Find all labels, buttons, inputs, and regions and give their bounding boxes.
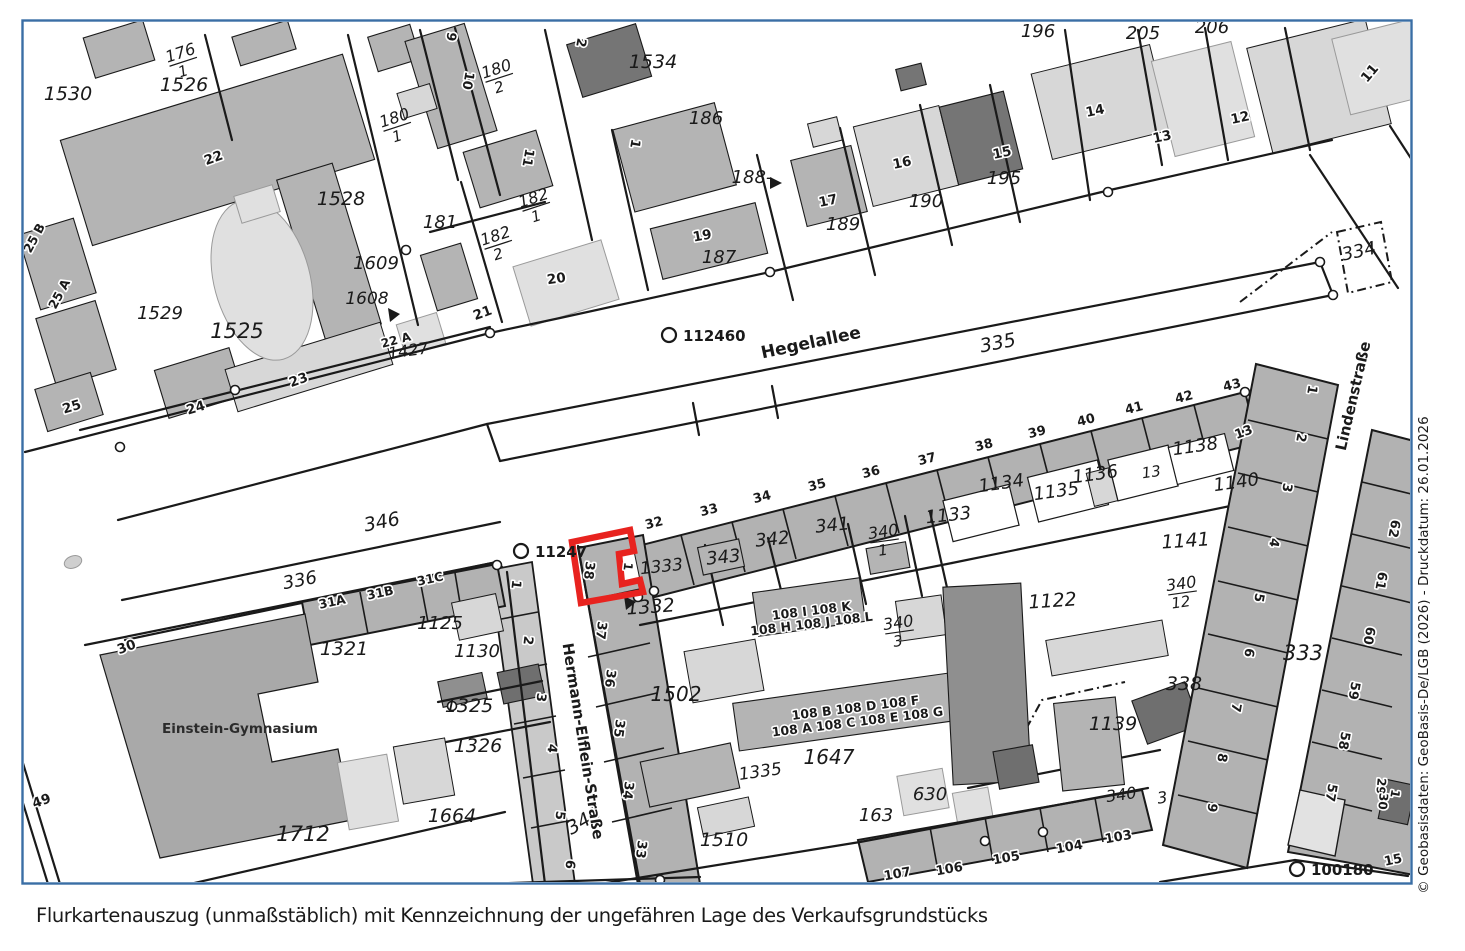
- house-number-4: 4: [543, 743, 559, 754]
- house-number-42: 42: [1174, 388, 1195, 407]
- parcel-label-1534: 1534: [629, 51, 677, 73]
- parcel-label-338: 338: [1166, 673, 1202, 695]
- parcel-label-1510: 1510: [700, 829, 748, 851]
- survey-marker-label-11247: 11247: [535, 543, 587, 561]
- svg-text:12: 12: [1170, 592, 1191, 612]
- parcel-label-1525: 1525: [210, 319, 263, 343]
- parcel-label-1502: 1502: [651, 682, 702, 706]
- parcel-label-1321: 1321: [320, 638, 368, 660]
- house-number-60: 60: [1359, 625, 1377, 645]
- house-number-49: 49: [30, 791, 53, 812]
- house-number-34: 34: [619, 781, 636, 801]
- house-number-6: 6: [561, 859, 577, 870]
- house-number-10: 10: [458, 70, 476, 90]
- svg-text:1: 1: [877, 541, 889, 560]
- house-number-1: 1: [507, 579, 523, 590]
- house-number-38: 38: [974, 436, 995, 455]
- house-number-36: 36: [861, 463, 882, 482]
- house-number-59: 59: [1344, 680, 1362, 700]
- parcel-label-1529: 1529: [137, 303, 183, 324]
- parcel-label-1530: 1530: [44, 83, 92, 105]
- parcel-label-189: 189: [826, 214, 860, 235]
- parcel-label-341: 341: [814, 513, 850, 537]
- copyright-credit: © Geobasisdaten: GeoBasis-De/LGB (2026) …: [1416, 416, 1432, 893]
- svg-text:1: 1: [390, 126, 405, 146]
- house-number-3: 3: [532, 692, 548, 703]
- parcel-label-1335: 1335: [737, 759, 783, 785]
- survey-marker-circle-112460: [662, 328, 676, 342]
- parcel-label-205: 205: [1126, 23, 1160, 44]
- parcel-label-1326: 1326: [454, 735, 502, 757]
- arrow-1608: [388, 308, 400, 322]
- house-number-32: 32: [644, 514, 665, 533]
- parcel-label-186: 186: [689, 108, 723, 129]
- house-number-40: 40: [1076, 411, 1097, 430]
- parcel-label-630: 630: [913, 784, 947, 805]
- parcel-label-334: 334: [1340, 238, 1378, 266]
- house-number-13: 13: [1151, 127, 1173, 147]
- parcel-label-181: 181: [423, 212, 457, 233]
- parcel-label-163: 163: [859, 805, 893, 826]
- house-number-37: 37: [917, 450, 938, 469]
- svg-text:2: 2: [491, 244, 506, 264]
- parcel-label-196: 196: [1021, 21, 1055, 42]
- street-name-hegelallee: Hegelallee: [759, 323, 862, 364]
- parcel-label-343: 343: [705, 545, 741, 569]
- parcel-label-346: 346: [362, 508, 402, 537]
- house-number-58: 58: [1334, 730, 1352, 750]
- parcel-label-1139: 1139: [1089, 713, 1137, 735]
- parcel-label-190: 190: [909, 191, 943, 212]
- house-number-37: 37: [592, 621, 609, 641]
- parcel-label-1325: 1325: [445, 695, 493, 717]
- house-number-61: 61: [1371, 570, 1389, 590]
- parcel-label-13: 13: [1141, 462, 1162, 482]
- survey-marker-circle-11247: [514, 544, 528, 558]
- parcel-label-1609: 1609: [353, 253, 399, 274]
- street-name-lindenstraße: Lindenstraße: [1332, 339, 1375, 452]
- house-number-39: 39: [1027, 423, 1048, 442]
- parcel-label-340-12: 34012: [1165, 572, 1200, 613]
- house-number-41: 41: [1124, 399, 1145, 418]
- house-number-21: 21: [471, 303, 494, 324]
- house-number-35: 35: [807, 476, 828, 495]
- parcel-label-1528: 1528: [317, 188, 365, 210]
- parcel-label-182-1: 1821: [516, 184, 556, 229]
- survey-marker-label-112460: 112460: [683, 327, 746, 345]
- svg-text:2: 2: [492, 77, 507, 97]
- buildings-northwest: [18, 19, 1430, 432]
- parcel-label-1141: 1141: [1161, 528, 1211, 553]
- parcel-label-1712: 1712: [276, 822, 329, 846]
- parcel-label-1608: 1608: [345, 289, 388, 309]
- house-number-2: 2: [519, 635, 535, 646]
- house-number-36: 36: [601, 669, 618, 689]
- parcel-label-1647: 1647: [804, 745, 855, 769]
- parcel-label-188-: 188-: [732, 167, 773, 188]
- parcel-label-336: 336: [281, 567, 319, 594]
- map-caption: Flurkartenauszug (unmaßstäblich) mit Ken…: [36, 904, 988, 927]
- svg-text:1: 1: [529, 206, 544, 226]
- flurkarte-page: 1530152615281529152518116091608142715341…: [0, 0, 1465, 951]
- parcel-label-333: 333: [1283, 641, 1323, 665]
- house-number-1: 1: [621, 561, 636, 571]
- survey-marker-label-100180: 100180: [1311, 861, 1374, 879]
- parcel-label-342: 342: [754, 527, 790, 551]
- parcel-label-1125: 1125: [417, 613, 463, 634]
- house-number-11: 11: [518, 147, 536, 167]
- house-number-33: 33: [632, 840, 649, 860]
- house-number-57: 57: [1321, 782, 1339, 802]
- house-number-35: 35: [610, 719, 627, 739]
- house-number-43: 43: [1222, 376, 1243, 395]
- house-number-33: 33: [699, 501, 720, 520]
- house-number-5: 5: [551, 810, 567, 821]
- house-number-62: 62: [1384, 518, 1402, 538]
- parcel-label-187: 187: [702, 247, 737, 268]
- house-number-34: 34: [752, 488, 773, 507]
- poi-label: Einstein-Gymnasium: [162, 721, 318, 737]
- survey-marker-circle-100180: [1290, 862, 1304, 876]
- parcel-label-3: 3: [1156, 787, 1169, 807]
- house-number-38: 38: [580, 561, 597, 581]
- parcel-label-335: 335: [978, 329, 1018, 358]
- parcel-label-1130: 1130: [454, 641, 500, 662]
- cadastral-map: 1530152615281529152518116091608142715341…: [0, 0, 1465, 951]
- parcel-label-1664: 1664: [428, 805, 476, 827]
- house-number-19: 19: [692, 227, 713, 246]
- house-number-20: 20: [546, 270, 567, 288]
- parcel-label-195: 195: [987, 168, 1021, 189]
- parcel-label-1122: 1122: [1028, 588, 1078, 613]
- map-content: 1530152615281529152518116091608142715341…: [18, 17, 1432, 885]
- parcel-label-1332: 1332: [626, 594, 676, 619]
